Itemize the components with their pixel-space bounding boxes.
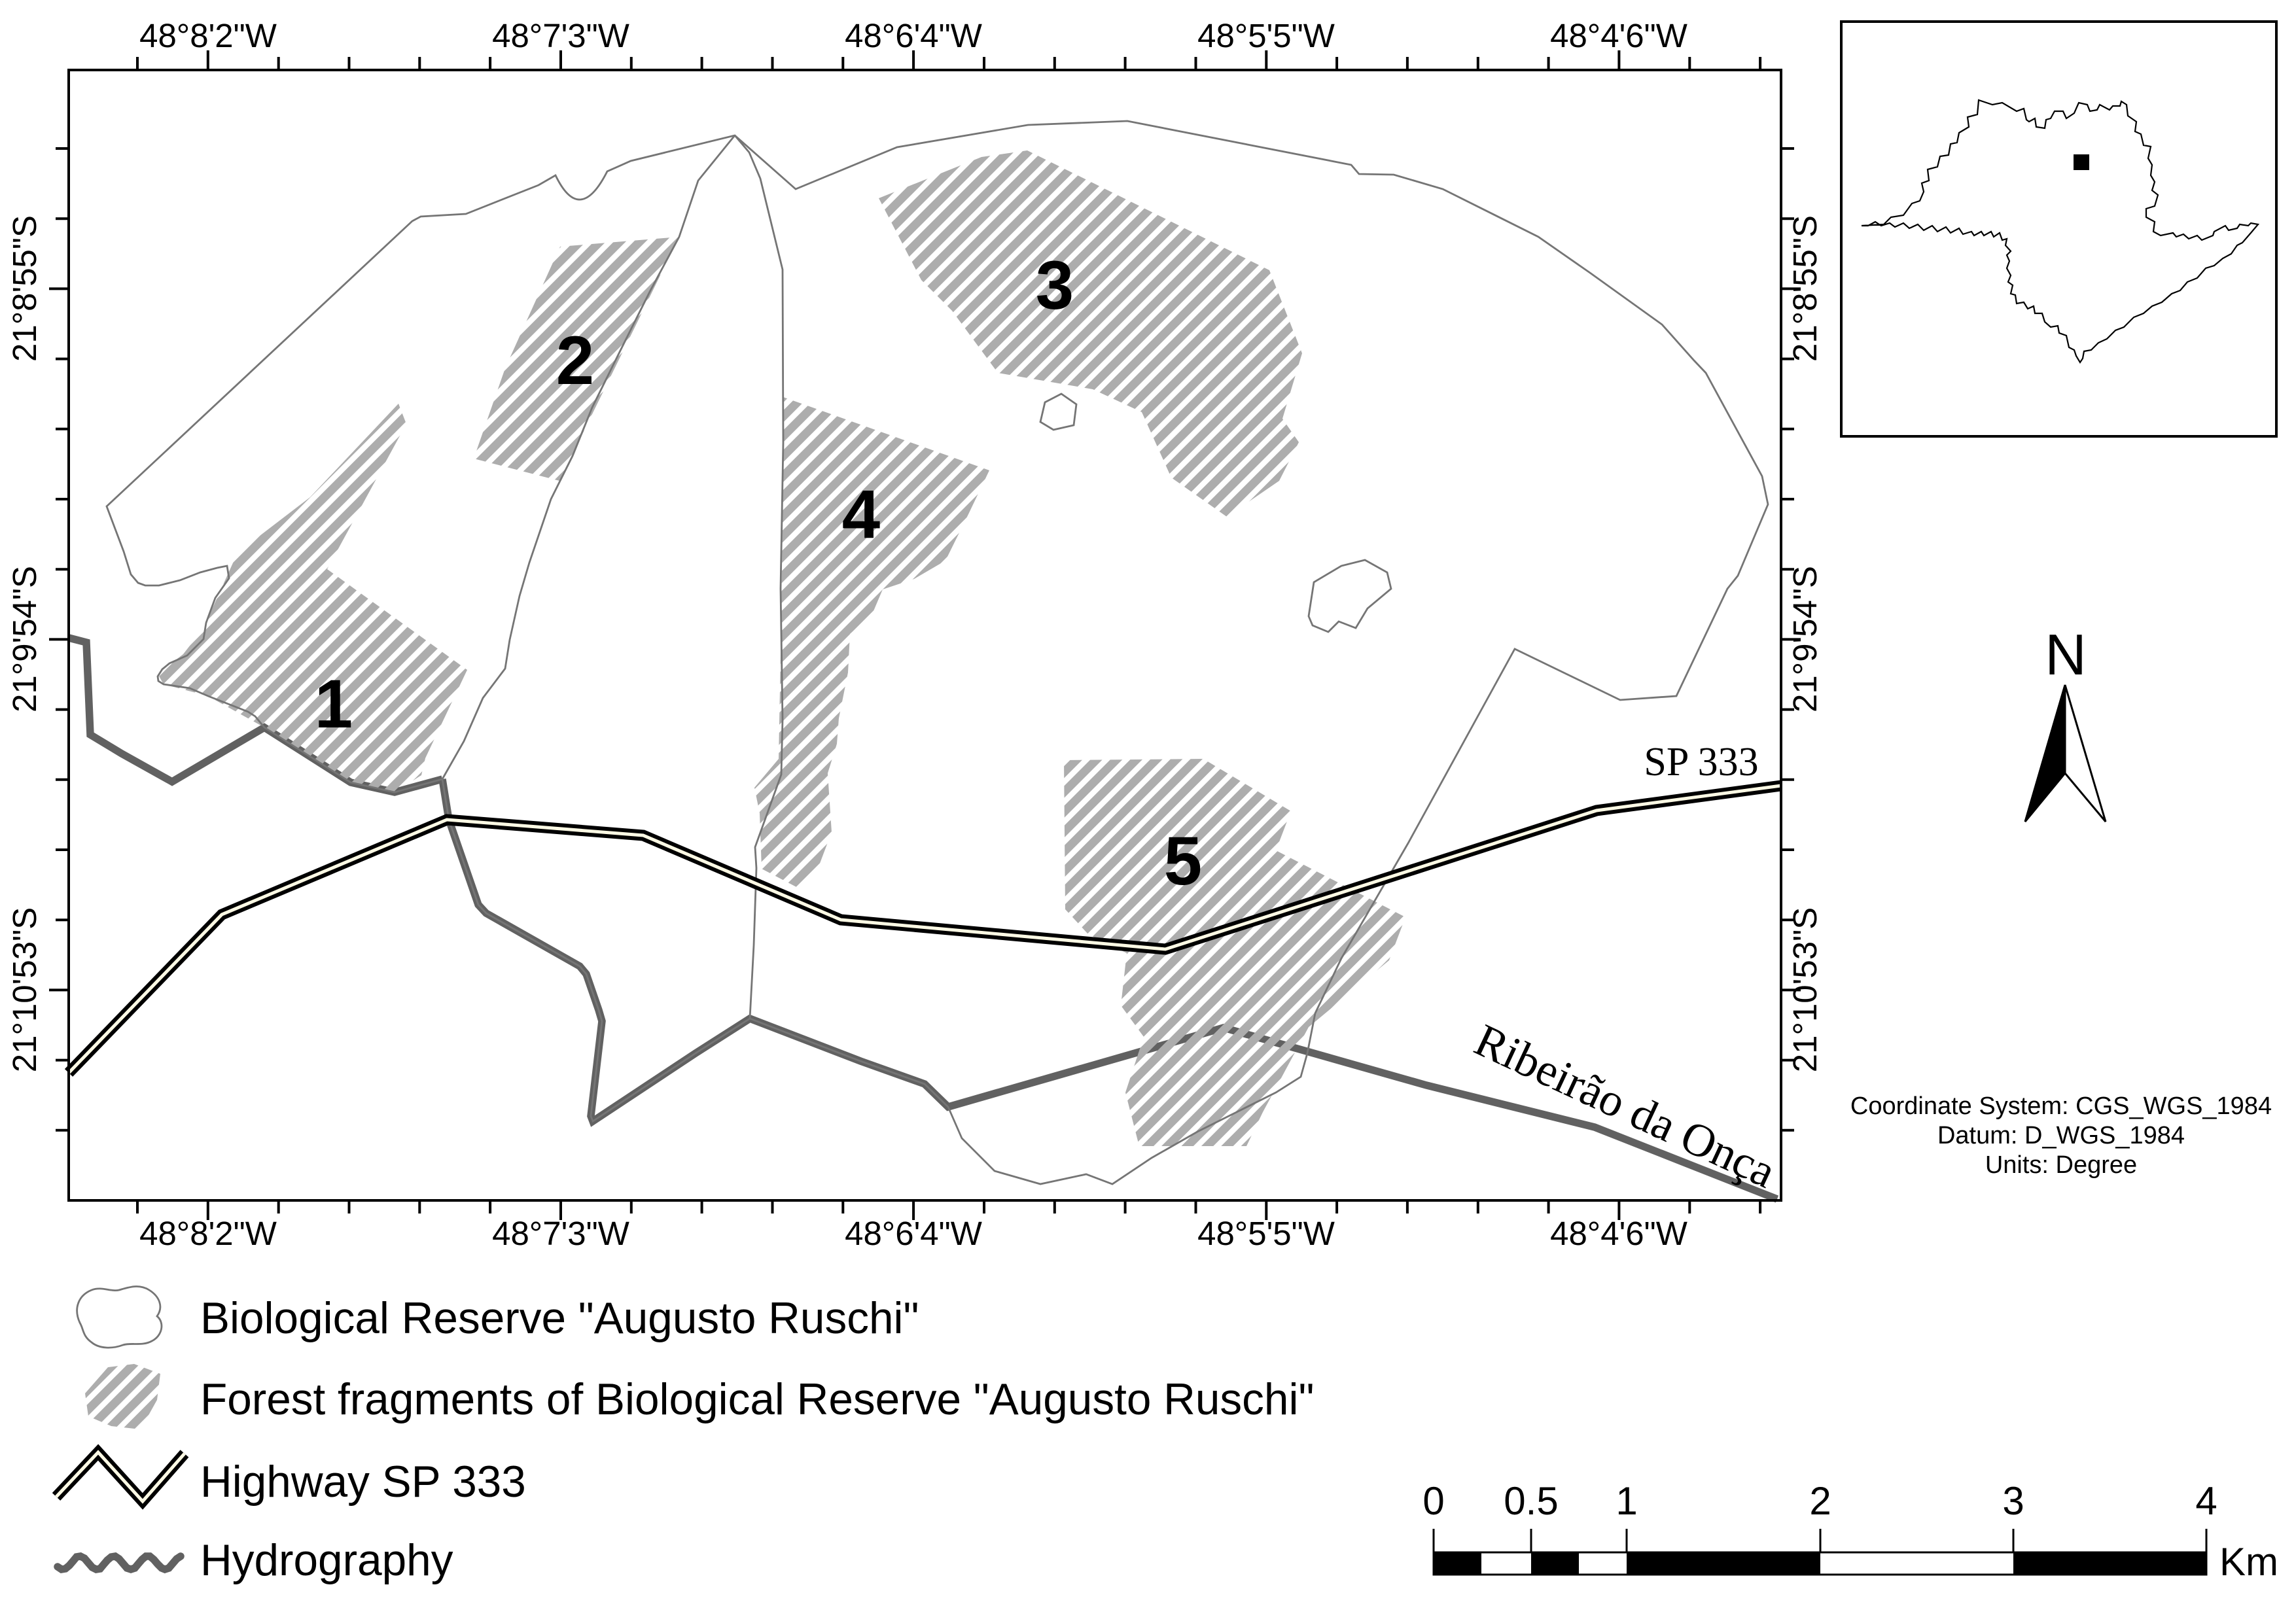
- svg-text:48°4'6"W: 48°4'6"W: [1550, 17, 1687, 54]
- svg-text:N: N: [2045, 622, 2087, 687]
- svg-text:48°8'2"W: 48°8'2"W: [139, 1215, 277, 1252]
- svg-text:Datum: D_WGS_1984: Datum: D_WGS_1984: [1937, 1122, 2185, 1149]
- svg-text:48°5'5"W: 48°5'5"W: [1197, 17, 1335, 54]
- svg-text:Units: Degree: Units: Degree: [1985, 1151, 2137, 1179]
- svg-text:48°6'4"W: 48°6'4"W: [845, 17, 982, 54]
- svg-text:0.5: 0.5: [1504, 1479, 1558, 1523]
- svg-text:21°10'53"S: 21°10'53"S: [1786, 907, 1824, 1072]
- svg-text:21°9'54"S: 21°9'54"S: [6, 566, 43, 712]
- svg-text:4: 4: [2195, 1479, 2217, 1523]
- svg-text:2: 2: [1809, 1479, 1831, 1523]
- svg-text:48°5'5"W: 48°5'5"W: [1197, 1215, 1335, 1252]
- svg-text:48°8'2"W: 48°8'2"W: [139, 17, 277, 54]
- svg-text:Km: Km: [2219, 1540, 2278, 1584]
- svg-text:5: 5: [1164, 823, 1202, 899]
- svg-text:Biological Reserve "Augusto Ru: Biological Reserve "Augusto Ruschi": [200, 1294, 919, 1343]
- svg-text:Hydrography: Hydrography: [200, 1536, 453, 1585]
- svg-text:21°10'53"S: 21°10'53"S: [6, 907, 43, 1072]
- svg-text:48°7'3"W: 48°7'3"W: [492, 17, 629, 54]
- svg-text:Highway SP 333: Highway SP 333: [200, 1457, 526, 1507]
- svg-text:1: 1: [1616, 1479, 1637, 1523]
- svg-text:3: 3: [1036, 247, 1074, 324]
- svg-text:21°9'54"S: 21°9'54"S: [1786, 566, 1824, 712]
- svg-text:0: 0: [1422, 1479, 1444, 1523]
- svg-text:SP 333: SP 333: [1644, 740, 1758, 784]
- svg-text:21°8'55"S: 21°8'55"S: [1786, 215, 1824, 362]
- svg-text:48°4'6"W: 48°4'6"W: [1550, 1215, 1687, 1252]
- svg-text:Coordinate System: CGS_WGS_198: Coordinate System: CGS_WGS_1984: [1850, 1092, 2272, 1120]
- svg-text:1: 1: [315, 666, 353, 742]
- svg-text:3: 3: [2002, 1479, 2024, 1523]
- svg-text:4: 4: [842, 476, 880, 553]
- svg-text:Forest fragments of Biological: Forest fragments of Biological Reserve "…: [200, 1375, 1314, 1424]
- svg-text:48°7'3"W: 48°7'3"W: [492, 1215, 629, 1252]
- svg-text:48°6'4"W: 48°6'4"W: [845, 1215, 982, 1252]
- svg-text:21°8'55"S: 21°8'55"S: [6, 215, 43, 362]
- svg-text:2: 2: [556, 323, 594, 399]
